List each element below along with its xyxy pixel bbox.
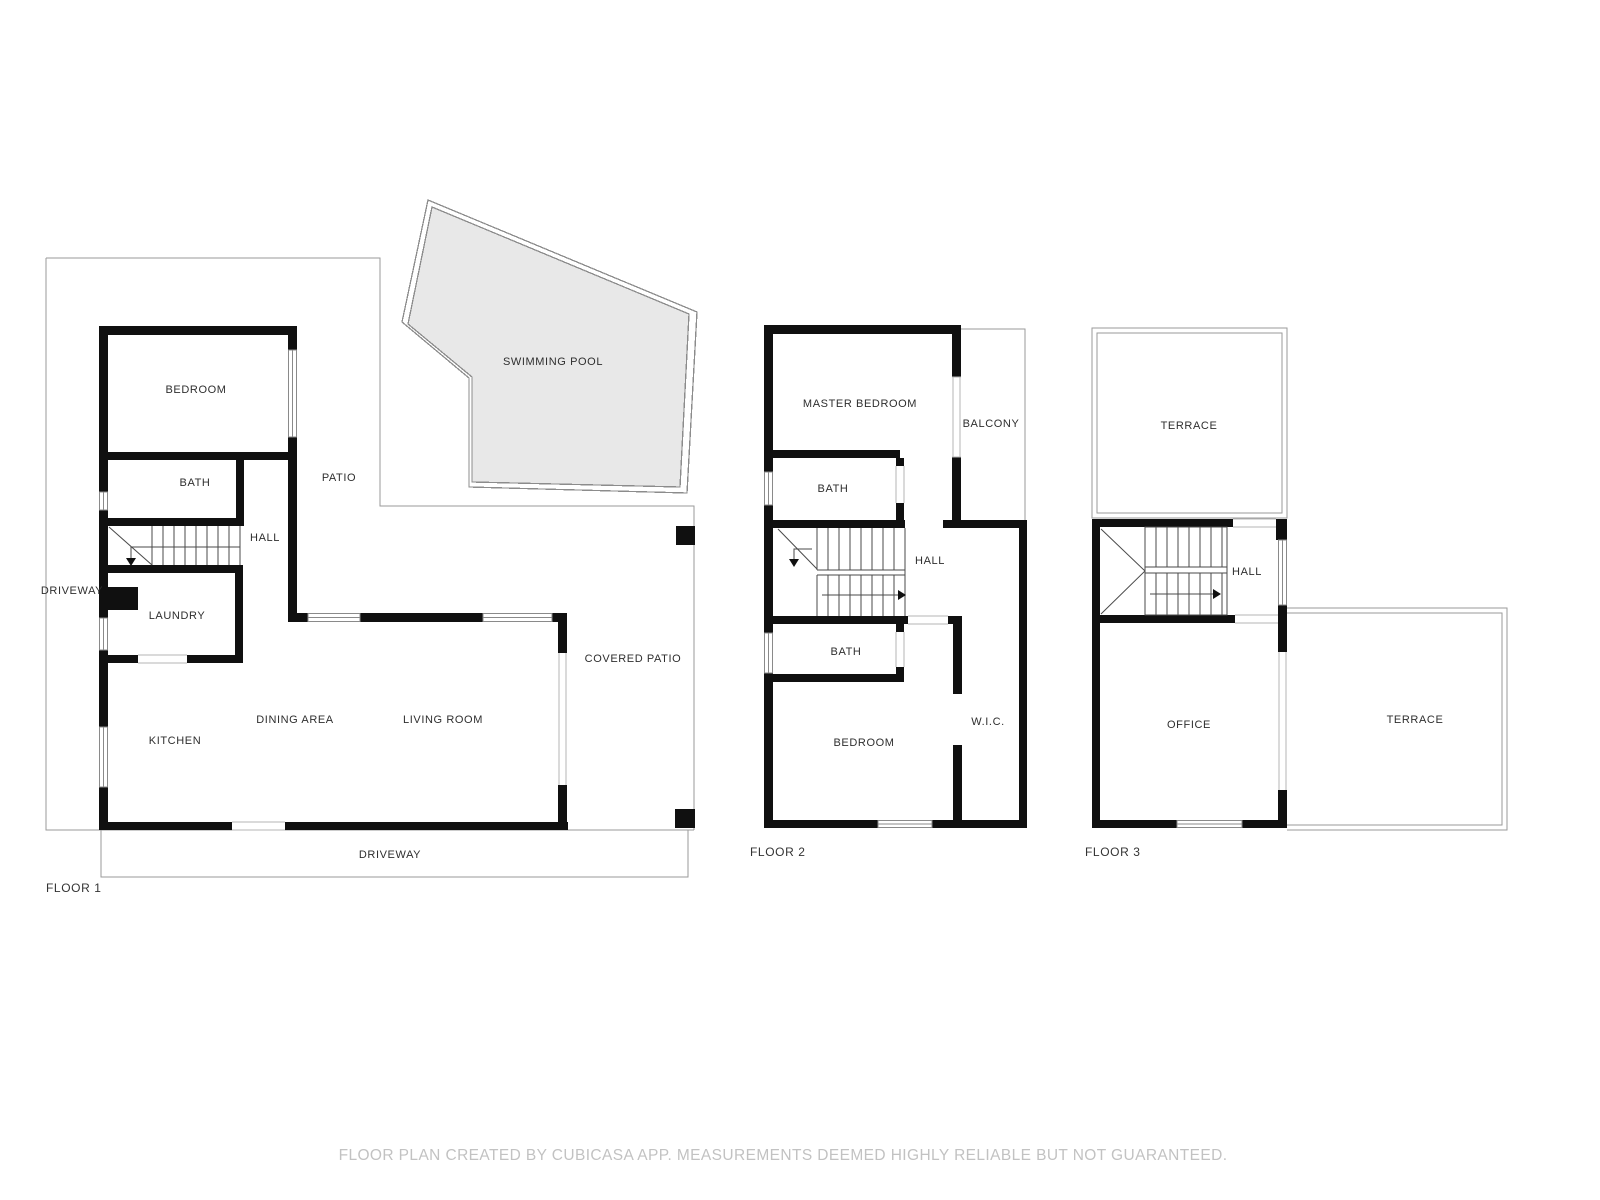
room-label-hall-f3: HALL — [1232, 566, 1262, 578]
room-label-covered-patio-f1: COVERED PATIO — [585, 653, 682, 665]
room-label-bedroom-f2: BEDROOM — [833, 737, 894, 749]
floor1-stairs — [109, 526, 240, 566]
floor3-windows — [1177, 540, 1287, 828]
floor3-plan — [1092, 328, 1507, 830]
floor-1-title: FLOOR 1 — [46, 881, 102, 895]
room-label-kitchen-f1: KITCHEN — [149, 735, 201, 747]
floor3-stairs — [1101, 527, 1227, 615]
floor2-stairs — [778, 528, 906, 616]
room-label-laundry-f1: LAUNDRY — [149, 610, 206, 622]
room-label-balcony-f2: BALCONY — [963, 418, 1020, 430]
room-label-terrace-top-f3: TERRACE — [1161, 420, 1218, 432]
floor1-openings — [138, 653, 566, 830]
room-label-dining-area-f1: DINING AREA — [256, 714, 334, 726]
room-label-terrace-right-f3: TERRACE — [1387, 714, 1444, 726]
room-label-wic-f2: W.I.C. — [971, 716, 1005, 728]
swimming-pool-shape — [402, 200, 697, 493]
floor-2-title: FLOOR 2 — [750, 845, 806, 859]
floor-3-title: FLOOR 3 — [1085, 845, 1141, 859]
room-label-living-room-f1: LIVING ROOM — [403, 714, 483, 726]
patio-pillars — [675, 526, 695, 828]
room-label-hall-f2: HALL — [915, 555, 945, 567]
room-label-swimming-pool-f1: SWIMMING POOL — [503, 356, 603, 368]
room-label-driveway-bottom-f1: DRIVEWAY — [359, 849, 421, 861]
room-label-master-bedroom-f2: MASTER BEDROOM — [803, 398, 917, 410]
room-label-driveway-left-f1: DRIVEWAY — [41, 585, 103, 597]
room-label-bath-upper-f2: BATH — [818, 483, 849, 495]
footer-disclaimer: FLOOR PLAN CREATED BY CUBICASA APP. MEAS… — [339, 1147, 1228, 1165]
room-label-hall-f1: HALL — [250, 532, 280, 544]
terrace-outlines — [1092, 328, 1507, 830]
floor-plan-drawing — [0, 0, 1600, 1200]
room-label-bedroom-f1: BEDROOM — [165, 384, 226, 396]
room-label-bath-f1: BATH — [180, 477, 211, 489]
room-label-bath-lower-f2: BATH — [831, 646, 862, 658]
room-label-office-f3: OFFICE — [1167, 719, 1211, 731]
room-label-patio-f1: PATIO — [322, 472, 356, 484]
floor1-plan — [46, 200, 697, 877]
